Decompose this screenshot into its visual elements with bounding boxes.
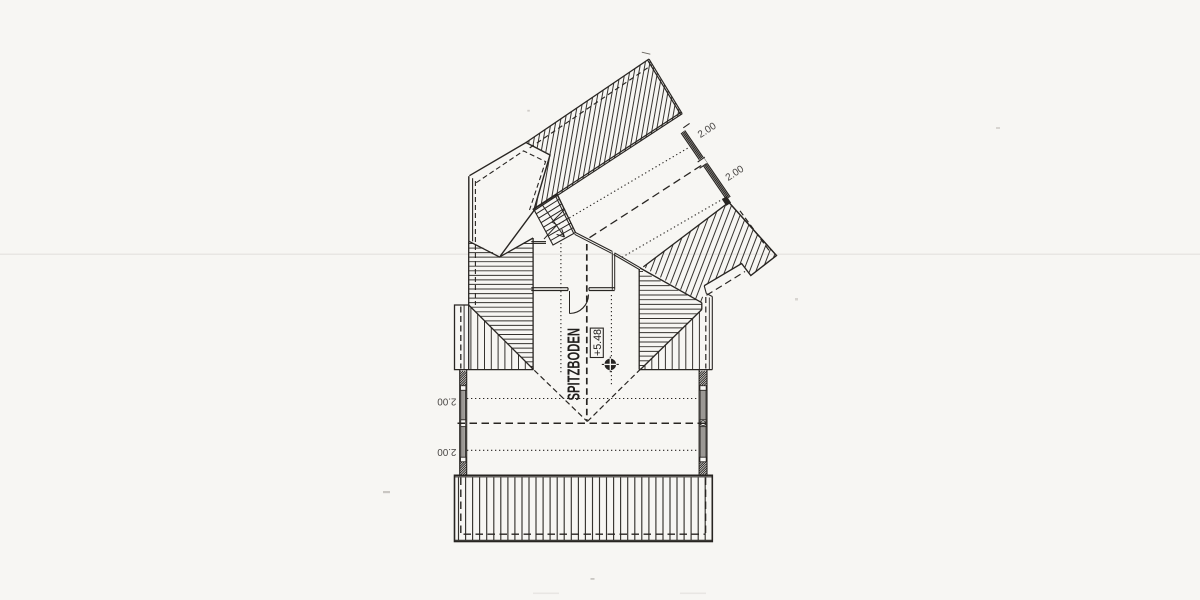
svg-text:SPITZBODEN: SPITZBODEN (564, 328, 584, 401)
svg-text:2.00: 2.00 (437, 396, 457, 407)
svg-text:2.00: 2.00 (437, 446, 457, 457)
svg-text:+5.48: +5.48 (592, 329, 604, 356)
